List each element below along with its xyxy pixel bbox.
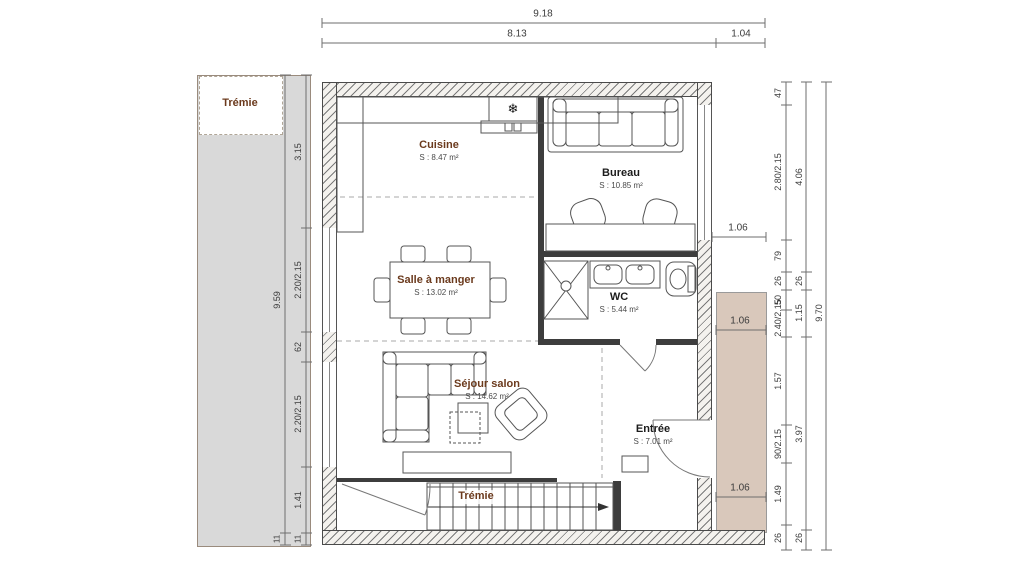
dim-right-inner-8: 1.49 — [773, 485, 783, 503]
dim-right-total: 9.70 — [814, 304, 824, 322]
room-label-bureau: Bureau S : 10.85 m² — [599, 167, 643, 191]
dim-right-inner-5: 2.40/2.15 — [773, 299, 783, 337]
room-label-entree: Entrée S : 7.01 m² — [633, 423, 672, 447]
room-label-tremie-stairs: Trémie — [456, 490, 495, 504]
entry-cabinet — [622, 456, 648, 472]
room-label-sejour-salon: Séjour salon S : 14.62 m² — [454, 378, 520, 402]
wc-shower — [544, 261, 588, 319]
dim-left-total-bottom: 11 — [273, 535, 282, 543]
coffee-tables — [450, 403, 488, 443]
dim-right-inner-6: 1.57 — [773, 372, 783, 390]
dim-right-mid-3: 3.97 — [794, 425, 804, 443]
bureau-sofa — [548, 97, 683, 152]
dim-left-total: 9.59 — [272, 291, 282, 309]
wc-toilet — [666, 262, 696, 296]
staircase — [427, 483, 613, 530]
dim-top-main: 8.13 — [507, 29, 526, 40]
dim-left-seg-4: 1.41 — [293, 491, 303, 509]
dim-right-mid-1: 26 — [794, 276, 804, 286]
plan-linework — [0, 0, 1024, 576]
dim-offset-2: 1.06 — [730, 483, 749, 494]
door-wc — [620, 345, 656, 371]
dim-offset-0: 1.06 — [728, 223, 747, 234]
dim-offset-1: 1.06 — [730, 316, 749, 327]
dim-right-inner-9: 26 — [773, 533, 783, 543]
dim-right-mid-2: 1.15 — [794, 304, 804, 322]
wc-vanity — [590, 261, 660, 288]
bureau-desk-chairs — [546, 195, 695, 251]
tv-stand — [403, 452, 511, 473]
room-label-salle-a-manger: Salle à manger S : 13.02 m² — [397, 274, 475, 298]
dim-right-mid-4: 26 — [794, 533, 804, 543]
dim-right-inner-0: 47 — [773, 88, 783, 98]
room-label-wc: WC S : 5.44 m² — [599, 291, 638, 315]
dim-left-seg-3: 2.20/2.15 — [293, 395, 303, 433]
door-bottom-left — [342, 484, 430, 515]
room-label-cuisine: Cuisine S : 8.47 m² — [419, 139, 459, 163]
dim-right-inner-7: 90/2.15 — [773, 429, 783, 459]
dim-right-mid-0: 4.06 — [794, 168, 804, 186]
dim-left-seg-0: 3.15 — [293, 143, 303, 161]
kitchen-counter — [337, 97, 618, 232]
dim-left-seg-1: 2.20/2.15 — [293, 261, 303, 299]
dim-right-inner-1: 2.80/2.15 — [773, 153, 783, 191]
snowflake-icon: ❄ — [508, 101, 519, 117]
dim-left-seg-5: 11 — [294, 535, 303, 543]
dim-right-inner-2: 79 — [773, 251, 783, 261]
room-label-tremie-opening: Trémie — [222, 97, 257, 111]
dim-top-right: 1.04 — [731, 29, 750, 40]
dim-top-total: 9.18 — [533, 9, 552, 20]
dim-left-seg-2: 62 — [293, 342, 303, 352]
dim-right-inner-3: 26 — [773, 276, 783, 286]
floor-plan: 9.18 8.13 1.04 9.59 11 3.15 2.20/2.15 62… — [0, 0, 1024, 576]
